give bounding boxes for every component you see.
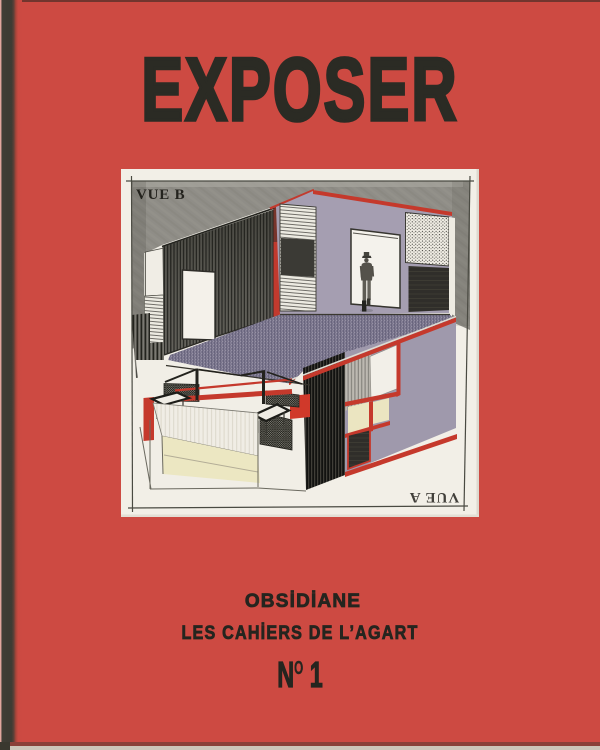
svg-text:VUE A: VUE A — [409, 489, 459, 505]
